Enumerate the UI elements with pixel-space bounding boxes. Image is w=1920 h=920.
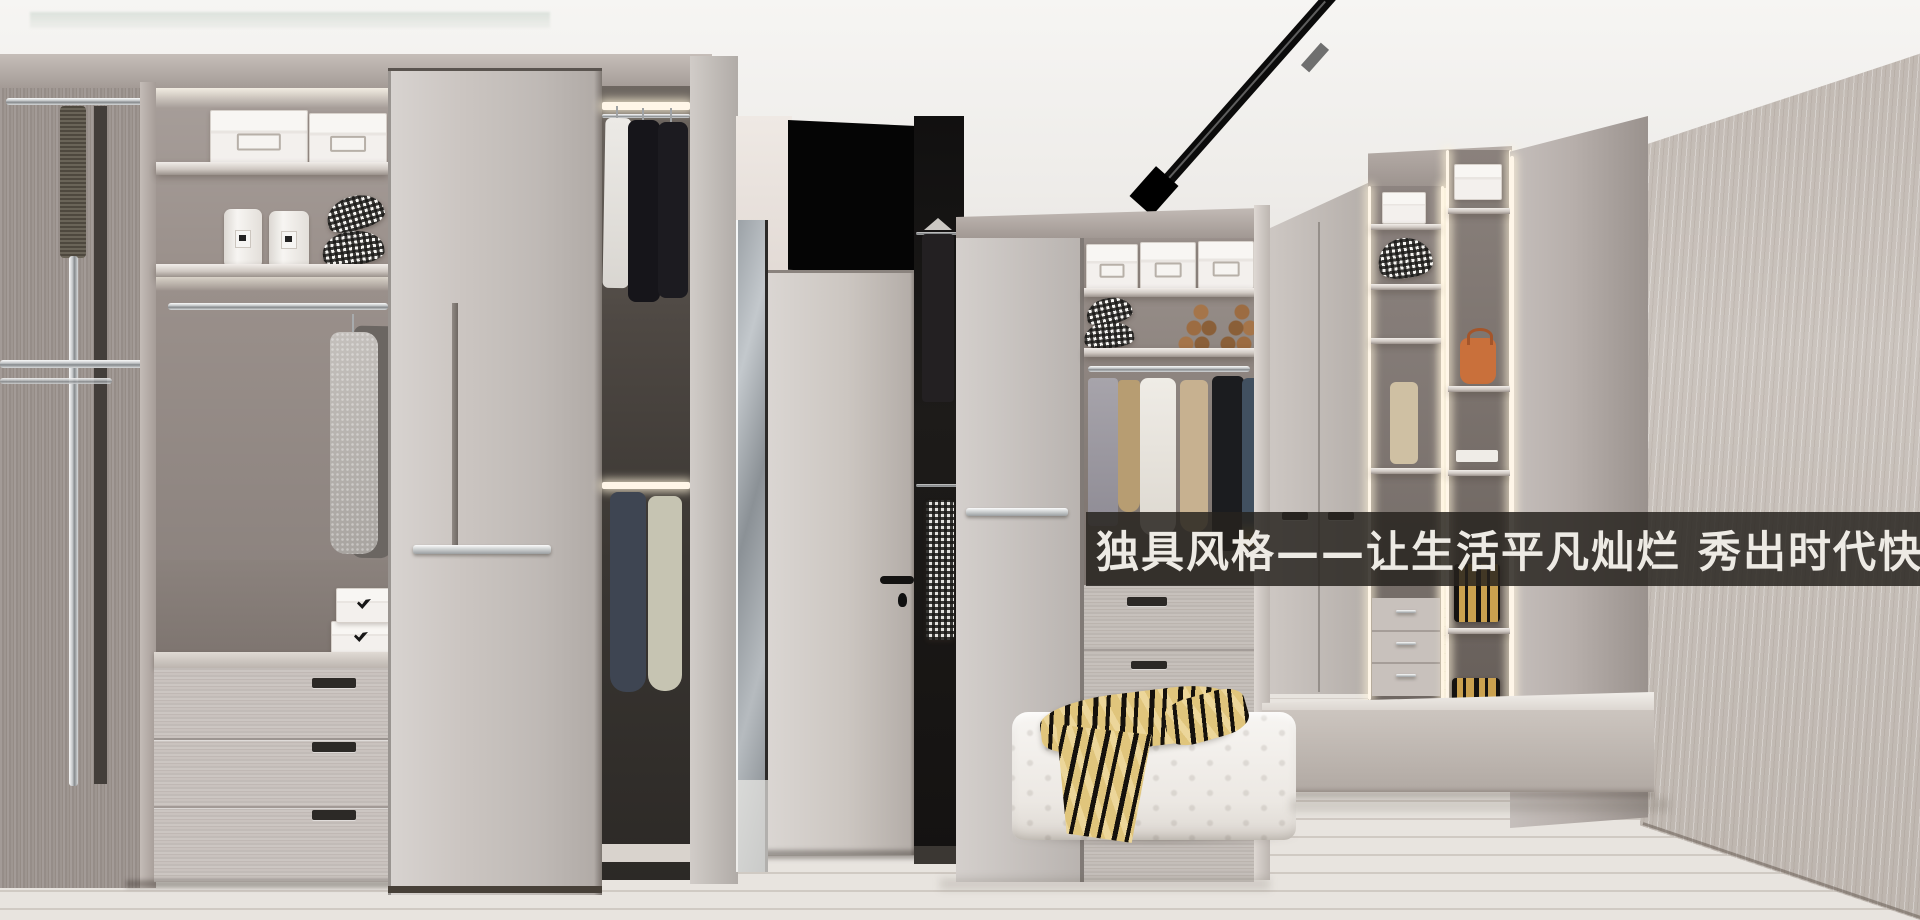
- left-column-pillar: [140, 82, 156, 888]
- drawer-separator: [154, 738, 390, 740]
- drawer-separator: [1372, 630, 1440, 632]
- storage-box-left: [210, 110, 308, 166]
- tan-garment: [1390, 382, 1418, 464]
- tiger-throw-top: [1037, 681, 1234, 760]
- left-hanging-rod: [168, 303, 388, 310]
- left-column-interior: [0, 88, 152, 888]
- track-light-groove: [1152, 1, 1326, 197]
- corner-cabinet-panel: [1270, 182, 1370, 694]
- canister-left: [224, 209, 262, 266]
- tiger-stripe-basket: [1452, 678, 1500, 740]
- hanger-hook: [352, 314, 354, 334]
- floor-shadow-center: [940, 878, 1270, 890]
- upper-led-strip: [602, 102, 690, 110]
- hanging-jacket-dark: [350, 326, 396, 559]
- black-long-coat: [1212, 376, 1244, 551]
- steamer-stack: [1218, 298, 1260, 352]
- beige-dress: [1180, 380, 1208, 532]
- corner-door-handle: [1328, 512, 1354, 520]
- hanger-hook: [642, 108, 644, 122]
- door-handle-lever: [880, 576, 914, 584]
- mirror-frame-edge: [765, 220, 768, 872]
- upper-rod: [602, 114, 690, 118]
- tower-shelf: [1371, 338, 1441, 344]
- gray-trousers: [1088, 378, 1118, 526]
- left-shelf-lower: [156, 264, 388, 277]
- box-label: [330, 135, 366, 151]
- gingham-pillow-top: [322, 189, 387, 238]
- walk-in-closet-scene: 独具风格——让生活平凡灿烂 秀出时代快乐！: [0, 0, 1920, 920]
- gingham-pillow: [1083, 320, 1135, 350]
- ottoman-shadow: [1006, 830, 1302, 846]
- left-column-rod: [6, 98, 148, 105]
- navy-coat: [610, 492, 646, 692]
- gap-gingham-garment: [926, 500, 954, 640]
- gap-floor: [914, 846, 964, 864]
- led-strip-vertical: [1446, 150, 1449, 704]
- black-tshirt: [658, 122, 688, 298]
- tower-shelf: [1448, 386, 1510, 392]
- tower-shelf: [1448, 470, 1510, 476]
- white-dress: [1140, 378, 1176, 536]
- mini-drawer-handle: [1396, 674, 1416, 677]
- end-panel-seam: [1510, 783, 1648, 785]
- hanger-hook: [670, 108, 672, 122]
- left-wardrobe-base-shadow: [126, 880, 392, 888]
- folded-white-textile: [1456, 450, 1498, 462]
- tiger-throw-front: [1046, 724, 1152, 845]
- left-column-rail-upper: [0, 360, 152, 368]
- steamer-stack: [1176, 300, 1218, 352]
- wall-floor-skirting: [1643, 822, 1920, 920]
- drawer-handle: [312, 678, 356, 688]
- storage-box: [1382, 192, 1426, 224]
- led-strip-vertical: [1368, 186, 1371, 700]
- orange-bag: [1460, 338, 1496, 384]
- gap-rod-upper: [916, 232, 960, 235]
- white-shirt: [603, 118, 632, 288]
- mini-drawer-handle: [1396, 610, 1416, 613]
- ceiling: [0, 0, 1920, 420]
- ottoman-group: [1012, 698, 1296, 850]
- shelf-tower-crown: [1368, 146, 1512, 188]
- platform-face: [1262, 710, 1654, 792]
- sequin-garment: [60, 106, 86, 258]
- drawer-separator: [154, 806, 390, 808]
- storage-box: [1454, 164, 1502, 200]
- end-panel: [1510, 116, 1648, 828]
- led-strip-vertical: [1509, 150, 1512, 704]
- tower-shelf: [1371, 468, 1441, 474]
- floor-planks-far: [0, 600, 1920, 730]
- right-hanging-rod: [1088, 366, 1250, 372]
- hanging-sweater: [330, 332, 378, 554]
- corner-panel-seam: [1318, 222, 1320, 692]
- shoe-box-top: [336, 588, 390, 623]
- left-counter: [154, 652, 390, 668]
- drawer-handle: [312, 810, 356, 820]
- mirror-floor-reflection: [736, 780, 768, 872]
- box-label: [237, 134, 281, 151]
- tiger-throw-tail: [1159, 683, 1252, 750]
- sliding-door-handle: [413, 545, 551, 554]
- right-shelf-lower: [1084, 348, 1254, 357]
- floor: [0, 600, 1920, 920]
- drawer-handle: [312, 742, 356, 752]
- door-keyhole: [898, 593, 907, 607]
- left-column-rail-lower: [0, 378, 112, 384]
- shelf-tower-b: [1446, 150, 1512, 752]
- mini-drawer-handle: [1396, 642, 1416, 645]
- gap-hanger: [924, 218, 952, 230]
- bag-handle: [1467, 328, 1493, 345]
- drawer-separator: [1084, 781, 1254, 783]
- open-door: [762, 270, 916, 855]
- shelf-tower-a: [1368, 186, 1444, 700]
- gap-rod-lower: [916, 484, 960, 487]
- drawer-handle: [1131, 661, 1167, 669]
- track-light-endcap: [1301, 43, 1329, 73]
- right-drawer-unit: [1084, 585, 1254, 882]
- door-right-edge: [910, 273, 916, 855]
- shoe-box-mark: [357, 599, 371, 609]
- canister-label: [281, 231, 297, 249]
- dark-closet-gap: [914, 116, 964, 864]
- storage-box: [1086, 244, 1138, 290]
- tower-shelf: [1371, 224, 1441, 230]
- sliding-door-bottom-rail: [388, 886, 602, 893]
- sliding-door-groove: [452, 303, 458, 549]
- left-drawer-unit: [154, 668, 390, 882]
- track-light-head: [1130, 166, 1179, 216]
- drawer-separator: [1372, 662, 1440, 664]
- drawer-separator: [1084, 713, 1254, 715]
- gap-dark-garment: [922, 234, 954, 402]
- sliding-door-right: [956, 238, 1084, 882]
- sliding-door-left: [388, 68, 602, 895]
- right-wardrobe-side-panel: [1254, 205, 1270, 880]
- wall-above-door: [736, 116, 792, 278]
- sliding-door-right-handle: [966, 508, 1068, 516]
- tower-mini-drawers: [1372, 598, 1440, 696]
- left-column-shadow-stripe: [94, 106, 107, 784]
- black-tshirt: [628, 120, 660, 302]
- canister-right: [269, 211, 309, 267]
- platform-top-edge: [1262, 692, 1654, 712]
- slogan-banner: 独具风格——让生活平凡灿烂 秀出时代快乐！: [1086, 512, 1920, 586]
- sliding-door-right-edge: [1080, 238, 1084, 882]
- tower-shelf: [1371, 284, 1441, 290]
- door-transom-dark: [788, 120, 922, 276]
- storage-box: [1140, 242, 1196, 290]
- left-wardrobe-crown: [0, 54, 712, 90]
- khaki-garment: [1118, 380, 1140, 512]
- tower-shelf: [1448, 208, 1510, 214]
- shoe-box-mark: [354, 632, 368, 642]
- wardrobe-floor-strip: [602, 844, 690, 862]
- shoe-box-bottom: [331, 621, 391, 656]
- led-strip-vertical: [1441, 186, 1444, 700]
- gingham-pillow-bottom: [320, 227, 386, 269]
- tower-shelf: [1448, 628, 1510, 634]
- drawer-handle: [1127, 597, 1167, 606]
- pull-down-rail: [69, 256, 78, 786]
- right-bay: [1084, 238, 1254, 882]
- denim-coat: [1242, 378, 1266, 546]
- ceiling-glass-strip: [30, 12, 550, 28]
- mirror-bevel: [736, 220, 738, 872]
- left-bay-back-panel: [156, 88, 388, 662]
- corner-door-handle: [1282, 512, 1308, 520]
- end-panel-led-edge: [1510, 156, 1514, 712]
- tiger-stripe-basket: [1454, 564, 1500, 622]
- box-label: [1155, 262, 1182, 277]
- gingham-pillow: [1375, 234, 1434, 281]
- box-label: [1100, 263, 1125, 278]
- track-light-bar: [1143, 0, 1336, 207]
- sliding-door-left-edge: [388, 71, 391, 895]
- sage-coat: [648, 496, 682, 691]
- drawer-separator: [1084, 649, 1254, 651]
- right-wardrobe-crown: [956, 208, 1262, 238]
- left-bay-lower-back: [156, 560, 388, 662]
- gingham-pillow: [1084, 294, 1134, 329]
- slogan-text: 独具风格——让生活平凡灿烂 秀出时代快乐！: [1096, 518, 1920, 580]
- lower-led-rod: [602, 482, 690, 489]
- left-wardrobe-side-panel: [690, 56, 738, 884]
- dressing-mirror: [736, 220, 768, 872]
- left-shelf-led-glow: [156, 277, 388, 291]
- sliding-door-right-shade: [594, 71, 602, 895]
- double-hang-section: [602, 86, 690, 880]
- tufted-ottoman: [1012, 712, 1296, 840]
- hanger-hook: [616, 106, 618, 120]
- canister-label: [235, 230, 251, 248]
- right-shelf-upper: [1084, 288, 1254, 297]
- storage-box: [1198, 241, 1254, 289]
- platform-shadow: [1262, 790, 1654, 798]
- left-bay-led-glow: [156, 88, 388, 108]
- floor-planks-near: [0, 730, 1920, 920]
- floor-shadow-right-units: [1290, 798, 1670, 812]
- drawer-handle: [1135, 729, 1169, 737]
- storage-box-right: [309, 113, 387, 166]
- wallpaper-wall: [1640, 36, 1920, 920]
- left-shelf-upper: [156, 162, 388, 175]
- door-bottom-shadow: [760, 850, 918, 859]
- box-label: [1213, 261, 1240, 276]
